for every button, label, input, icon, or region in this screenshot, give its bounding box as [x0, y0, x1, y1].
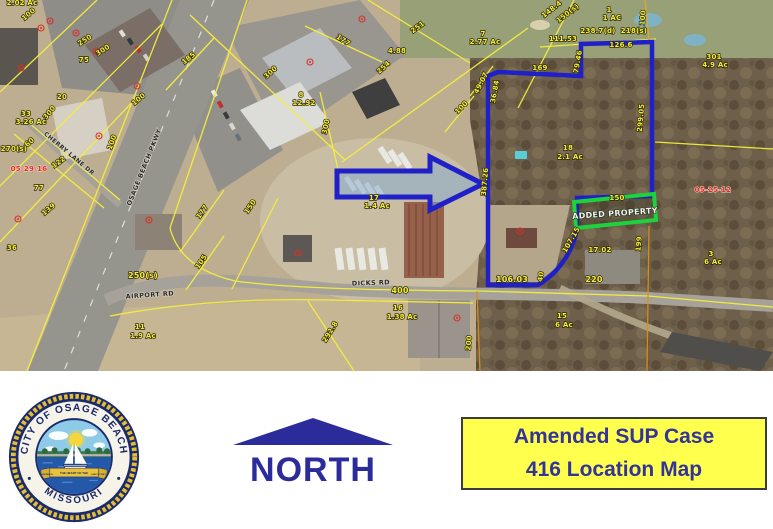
parcel-label: 111.53 — [549, 35, 577, 43]
parcel-label: 7 — [480, 30, 485, 38]
parcel-label: 4.88 — [388, 47, 406, 55]
parcel-label: 199 — [634, 236, 643, 252]
parcel-label: 15 — [557, 312, 567, 320]
bridge-icon — [35, 454, 113, 456]
parcel-label: 36 — [7, 244, 17, 252]
seal-banner-center: THE HEART OF THE — [60, 471, 88, 475]
parcel-label: 75 — [79, 56, 89, 64]
parcel-label: 238.7(d) — [580, 27, 615, 35]
parcel-label: 1.38 Ac — [387, 313, 418, 321]
parcel-label: 8 — [298, 91, 303, 99]
aerial-map-svg: ADDED PROPERTY OSAGE BEACH PKWY AIRPORT … — [0, 0, 773, 371]
parcel-label: 270(s) — [1, 145, 27, 153]
parcel-label: 2.02 Ac — [7, 0, 38, 7]
parcel-label: 16 — [393, 304, 403, 312]
parcel-label: 20 — [57, 93, 67, 101]
parcel-label: 106.03 — [496, 275, 528, 284]
road-label-dicks-rd: DICKS RD — [352, 278, 391, 287]
parcel-label: 33 — [21, 110, 31, 118]
parcel-label: 301 — [706, 53, 721, 61]
north-label: NORTH — [230, 453, 396, 487]
parcel-label: 05-25-12 — [695, 186, 732, 194]
parcel-label: 400 — [391, 286, 409, 295]
case-title-line2: 416 Location Map — [463, 454, 765, 487]
parcel-label: 169 — [532, 64, 547, 72]
parcel-label: 100 — [638, 10, 647, 26]
parcel-label: 77 — [34, 184, 44, 192]
parcel-label: 220 — [585, 275, 603, 284]
parcel-label: 17 — [369, 194, 379, 202]
parcel-label: 1.9 Ac — [130, 332, 156, 340]
parcel-label: 200 — [464, 335, 473, 351]
parcel-label: 17.02 — [588, 246, 611, 254]
parcel-label: 05-29-16 — [11, 165, 48, 173]
parcel-label: 18 — [563, 144, 573, 152]
parcel-label: 150 — [609, 194, 624, 202]
parcel-label: 218(s) — [621, 27, 647, 35]
parcel-label: 1 — [606, 6, 611, 14]
footer: OSAGE BEACH THE HEART OF THE LAKE OF THE… — [0, 371, 773, 529]
parcel-label: 2.77 Ac — [470, 38, 501, 46]
north-indicator: NORTH — [230, 418, 396, 487]
north-arrow-icon — [233, 418, 393, 446]
parcel-label: 3.26 Ac — [16, 118, 47, 126]
parcel-label: 12.92 — [292, 99, 315, 107]
parcel-label: 1.4 Ac — [364, 202, 390, 210]
parcel-label: 2.1 Ac — [557, 153, 583, 161]
parcel-label: 11 — [135, 323, 145, 331]
city-seal: OSAGE BEACH THE HEART OF THE LAKE OF THE… — [6, 389, 142, 525]
parcel-label: 126.6 — [609, 41, 632, 49]
parcel-label: 6 Ac — [555, 321, 573, 329]
location-map: ADDED PROPERTY OSAGE BEACH PKWY AIRPORT … — [0, 0, 773, 371]
page: ADDED PROPERTY OSAGE BEACH PKWY AIRPORT … — [0, 0, 773, 529]
parcel-label: 3 — [708, 250, 713, 258]
parcel-label: 250(s) — [128, 271, 158, 280]
sun-icon — [69, 433, 83, 447]
case-title-box: Amended SUP Case 416 Location Map — [461, 417, 767, 490]
case-title-line1: Amended SUP Case — [463, 421, 765, 454]
parcel-label: 6 Ac — [704, 258, 722, 266]
parcel-label: 1 AC — [603, 14, 622, 22]
parcel-label: 4.9 Ac — [702, 61, 728, 69]
pool — [515, 151, 527, 159]
